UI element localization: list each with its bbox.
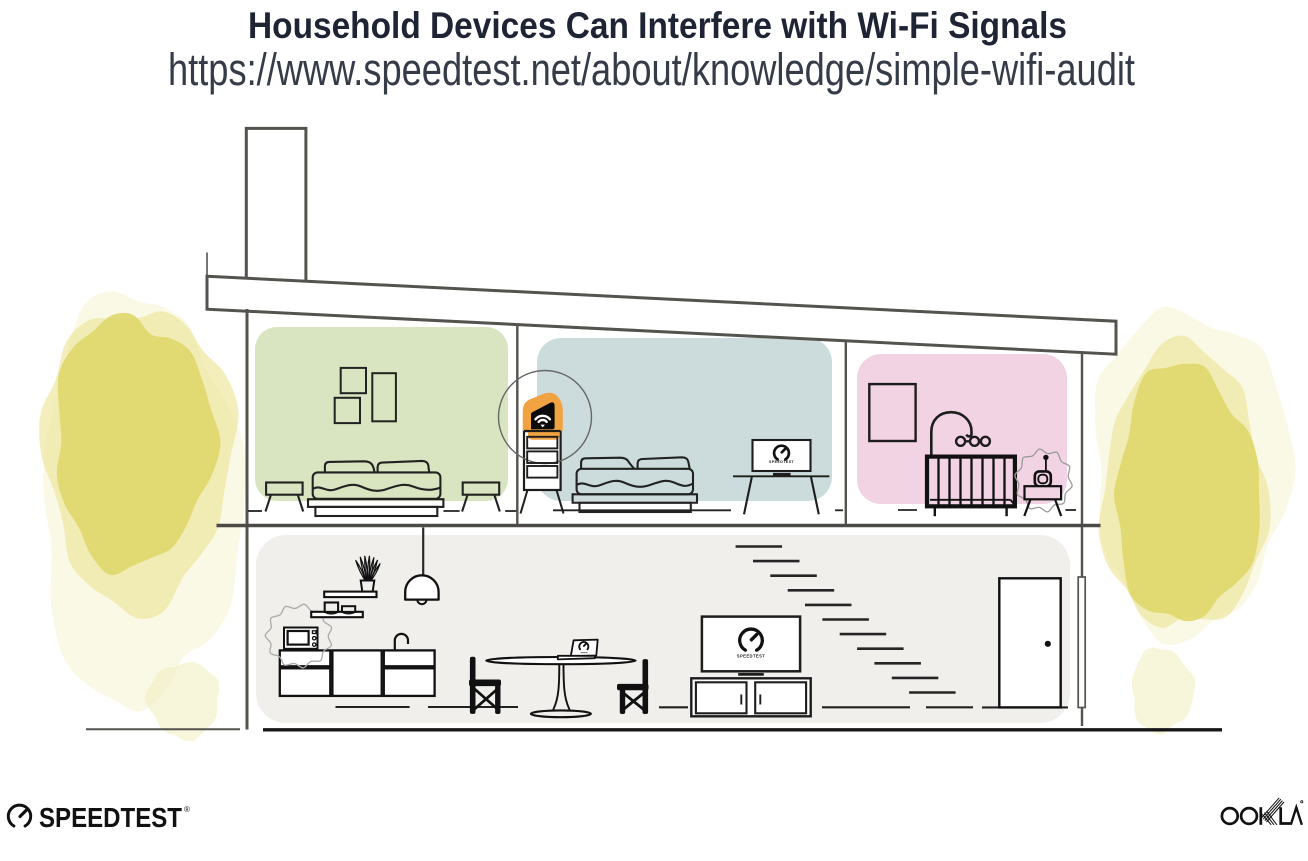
svg-text:®: ® [184, 805, 190, 814]
svg-text:https://www.speedtest.net/abou: https://www.speedtest.net/about/knowledg… [168, 44, 1135, 95]
svg-text:Household Devices Can Interfer: Household Devices Can Interfere with Wi-… [248, 5, 1067, 46]
svg-text:SPEEDTEST: SPEEDTEST [737, 654, 766, 659]
svg-text:SPEEDTEST: SPEEDTEST [39, 802, 182, 833]
svg-text:SPEEDTEST: SPEEDTEST [769, 460, 794, 464]
